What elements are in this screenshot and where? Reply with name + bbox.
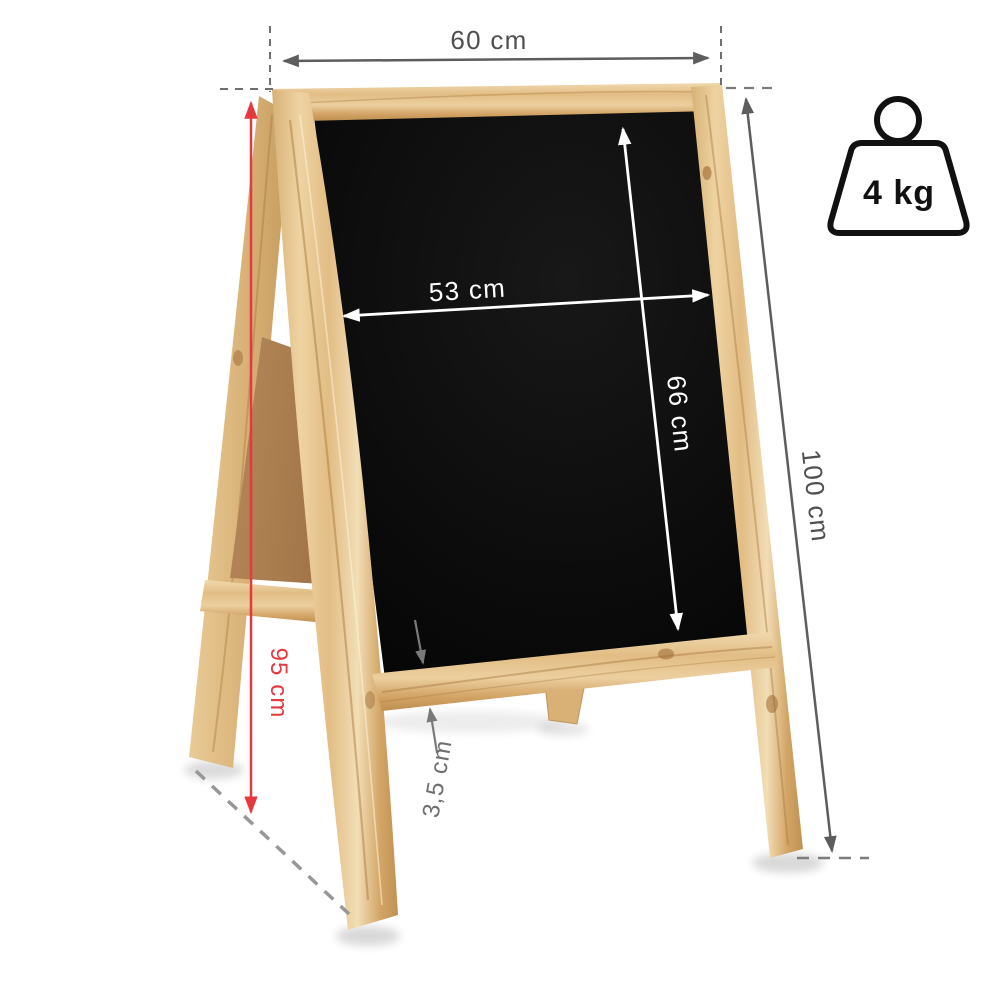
wood-knot [658, 649, 674, 660]
label-frame-thickness: 3,5 cm [417, 738, 457, 820]
dimension-outer-width: 60 cm [270, 25, 721, 92]
shadow-right-foot [752, 853, 824, 873]
wood-knot [766, 695, 778, 713]
weight-label: 4 kg [863, 174, 935, 212]
label-total-height: 100 cm [796, 448, 836, 544]
wood-knot [365, 691, 375, 709]
shadow-front-left-foot [336, 926, 400, 946]
ground-shadows [184, 711, 824, 946]
shadow-bottom-rail [375, 711, 565, 733]
easel-illustration [184, 83, 824, 946]
product-dimension-image: 60 cm 95 cm 100 cm 53 cm 66 cm [0, 0, 1000, 1000]
ground-projection-dashed-line [196, 771, 349, 914]
label-side-height: 95 cm [265, 648, 292, 719]
wood-knot [233, 350, 243, 366]
weight-icon: 4 kg [830, 99, 966, 233]
label-outer-width: 60 cm [450, 25, 527, 55]
shadow-back-left-foot [184, 761, 244, 779]
wood-knot [703, 166, 712, 180]
weight-handle-ring [877, 99, 919, 141]
dimension-diagram: 60 cm 95 cm 100 cm 53 cm 66 cm [0, 0, 1000, 1000]
dimension-arrow-line [284, 58, 708, 61]
label-board-width: 53 cm [428, 273, 507, 308]
